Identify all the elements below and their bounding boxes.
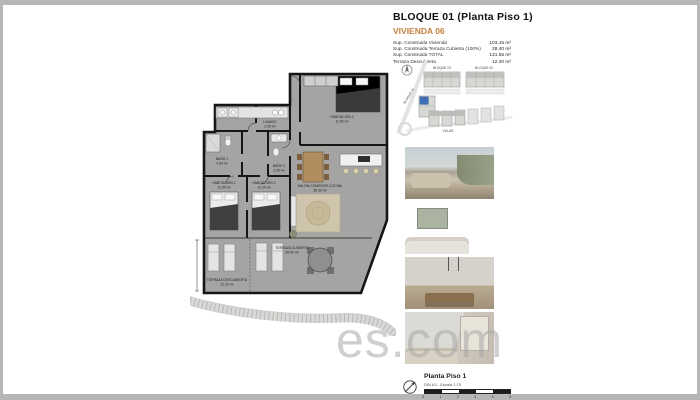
room-area: 11.90 m² [217,185,231,189]
minimap-highlighted-unit [420,97,429,105]
room-area: 11.50 m² [335,119,349,123]
minimap-bloque02-building [466,72,504,94]
minimap-compass-icon [402,65,412,76]
salon-rug [296,194,340,232]
dining-table [297,152,329,182]
room-label: LAVADO [263,120,277,124]
wardrobe-habitacion-3 [304,76,338,86]
minimap-label-bloque03: BLOQUE 03 [433,66,451,70]
bed-habitacion-2 [252,192,280,230]
room-label: HABITACIÓN 3 [330,114,353,119]
room-area: 36.30 m² [313,188,327,192]
room-area: 12.20 m² [220,282,234,286]
footer: Planta Piso 1 DIN A3 - Escala 1:75 0 1 2… [401,373,521,399]
salon-sofa [291,196,296,226]
minimap-label-villas: VILLAS [443,129,454,133]
room-area: 10.20 m² [257,185,271,189]
room-area: 4.50 m² [216,161,228,165]
minimap-bloque03-building [424,72,460,94]
photo-pendant-lights [448,257,449,271]
photo-terrace-sofa [411,173,450,191]
room-label: BAÑO 2 [273,163,286,168]
scale-tick: 3 [474,395,476,399]
photo-dining-room [405,257,494,309]
scale-note: DIN A3 - Escala 1:75 [424,382,521,387]
terrace-round-table [307,247,334,274]
bed-habitacion-1 [210,192,238,230]
bed-habitacion-3 [336,76,380,112]
room-label: HABITACIÓN 1 [212,180,235,185]
photo-living-room [405,202,494,254]
photo-bedroom [405,312,494,364]
room-label: SALÓN-COMEDOR-COCINA [298,183,343,188]
scale-ticks: 0 1 2 3 4 5 [422,395,511,399]
plan-name: Planta Piso 1 [424,373,521,380]
document-page: BLOQUE 01 (Planta Piso 1) VIVIENDA 06 Su… [3,5,697,394]
scale-tick: 0 [422,395,424,399]
plant-icon [289,230,296,237]
dimension-line [195,240,199,291]
scale-tick: 4 [492,395,494,399]
minimap-label-bloque02: BLOQUE 02 [475,66,493,70]
room-label: TERRAZA CUBIERTA [275,246,309,250]
photo-bed [405,348,458,364]
site-plan-minimap: BLOQUE 03 BLOQUE 02 BLOQUE 01 [396,57,513,139]
room-area: 3.55 m² [273,168,285,172]
compass-icon [401,378,419,396]
room-area: 2.05 m² [264,124,276,128]
room-label: BAÑO 1 [216,156,229,161]
page-title: BLOQUE 01 (Planta Piso 1) [393,11,511,23]
unit-subtitle: VIVIENDA 06 [393,26,511,36]
photo-window [460,316,489,351]
scale-tick: 2 [457,395,459,399]
scale-bar [424,389,511,394]
photo-wall-art [417,208,447,229]
photo-dining-table [425,293,475,301]
scale-tick: 5 [509,395,511,399]
room-label: TERRAZA DESCUBIERTA [207,278,248,282]
scale-tick: 1 [439,395,441,399]
photo-sofa [405,237,469,254]
photo-terrace [405,147,494,199]
photo-terrace-greenery [457,155,494,185]
room-area: 28.40 m² [285,250,299,254]
floor-plan: HABITACIÓN 3 11.50 m² LAVADO 2.05 m² BAÑ… [190,68,396,336]
photo-column [405,147,494,367]
room-label: HABITACIÓN 2 [252,180,275,185]
walkway-pavers [190,296,396,337]
